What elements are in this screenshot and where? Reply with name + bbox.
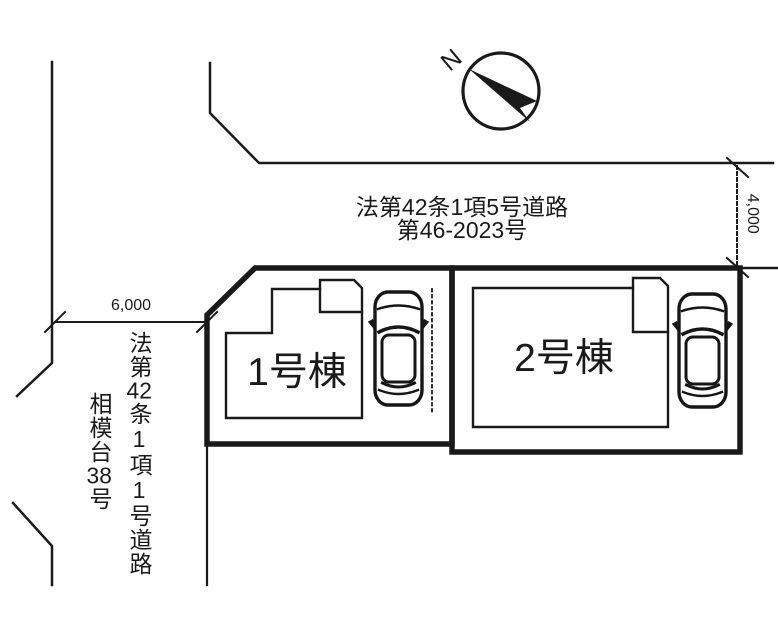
site-plan-drawing: [0, 0, 778, 636]
building2-porch: [633, 288, 668, 332]
car-icon: [369, 292, 428, 405]
west-road-name-vertical: 法第42条1項1号道路: [127, 331, 150, 576]
dimension-4000-label: 4,000: [743, 193, 761, 235]
site-plan: N 法第42条1項5号道路 第46-2023号 6,000 4,000 法第42…: [0, 0, 778, 636]
west-road-boundary: [13, 62, 52, 585]
compass-icon: [463, 53, 539, 129]
west-road-id-vertical: 相模台38号: [87, 392, 110, 511]
lot2-label: 2号棟: [514, 338, 614, 381]
dimension-6000-line: [45, 312, 217, 332]
building1-porch: [320, 289, 362, 312]
car-icon: [673, 294, 732, 407]
north-road-number: 第46-2023号: [397, 218, 527, 243]
lot1-label: 1号棟: [247, 352, 347, 395]
dimension-6000-label: 6,000: [111, 297, 151, 315]
building1-outline: [226, 280, 362, 418]
